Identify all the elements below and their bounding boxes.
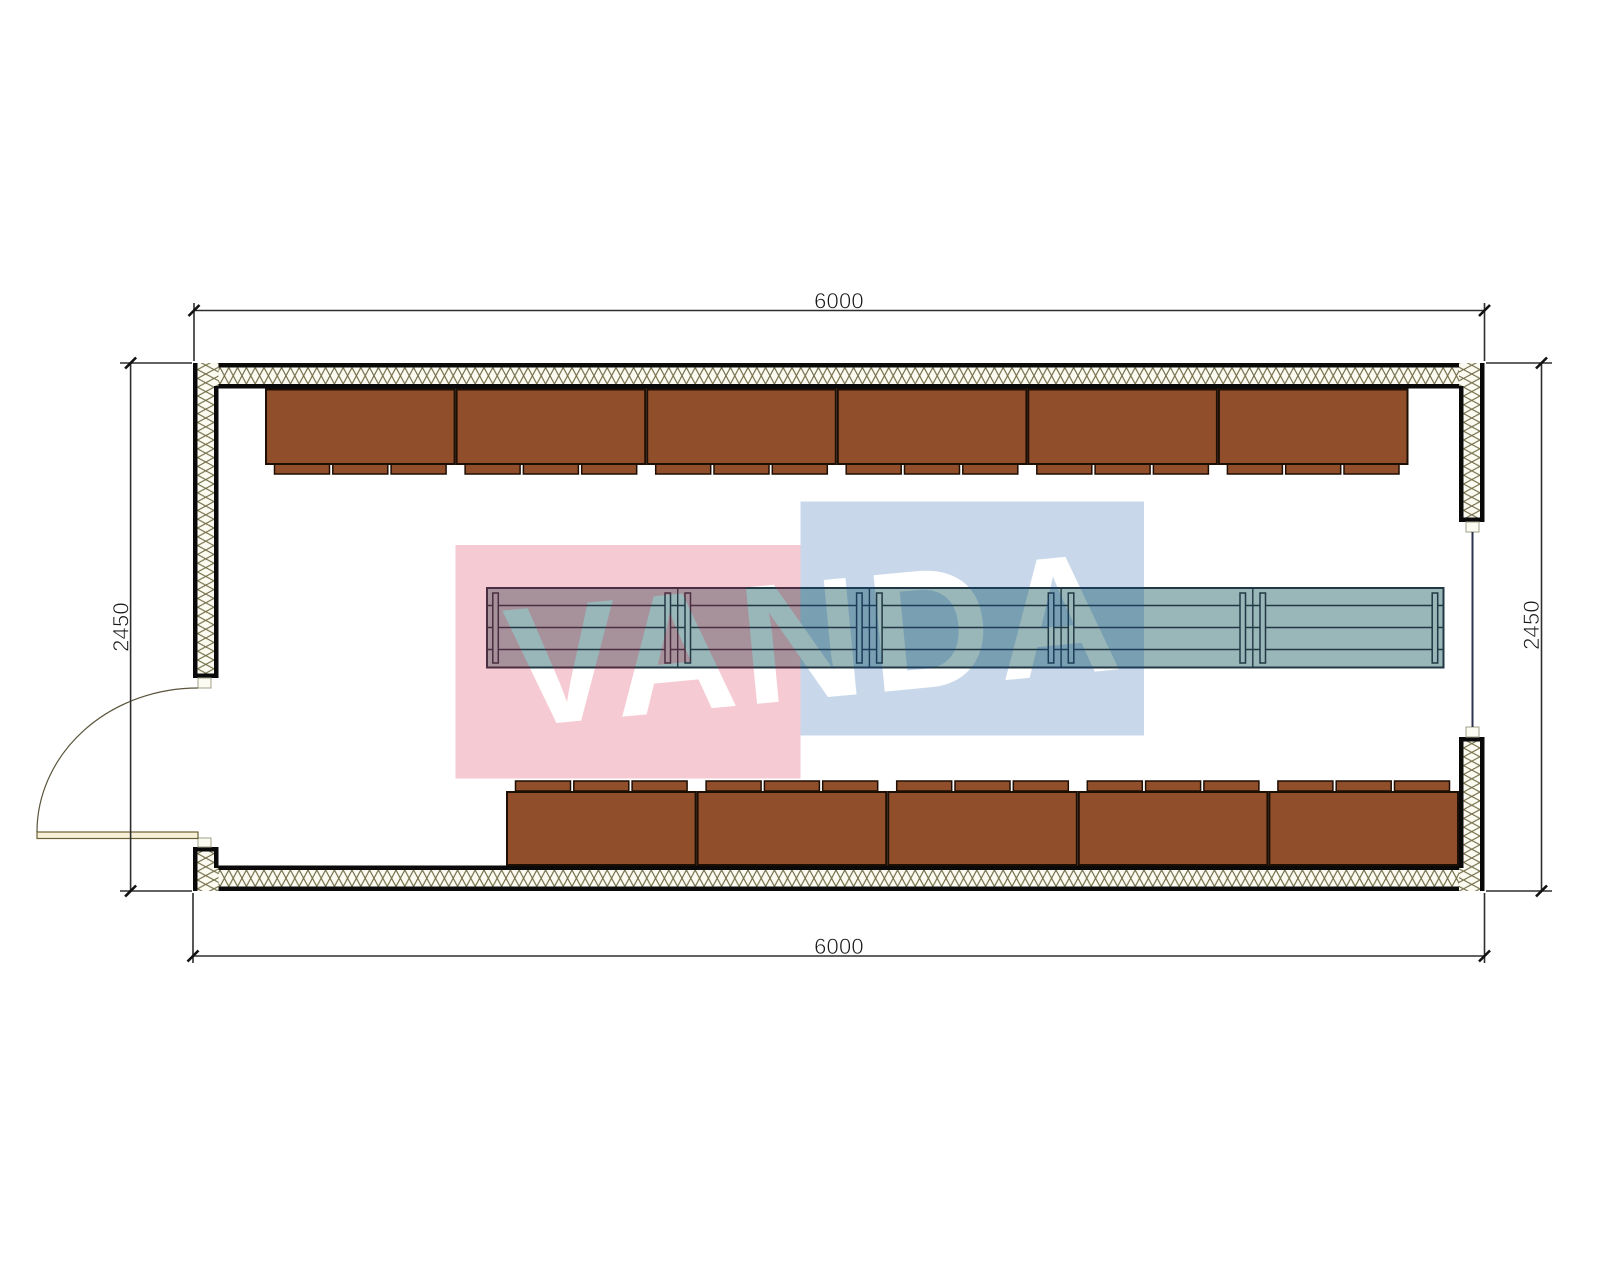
svg-text:6000: 6000 xyxy=(814,934,864,959)
svg-text:6000: 6000 xyxy=(814,289,864,314)
svg-text:2450: 2450 xyxy=(1519,600,1544,650)
svg-text:2450: 2450 xyxy=(109,602,134,652)
